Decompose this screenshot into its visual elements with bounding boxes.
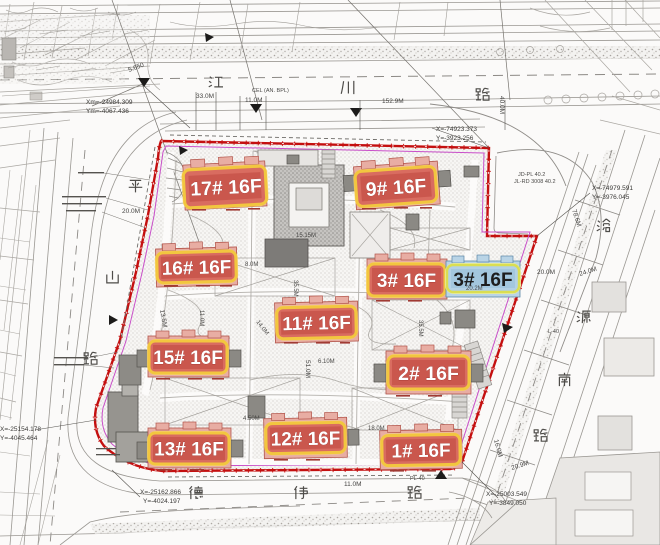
svg-text:12# 16F: 12# 16F bbox=[270, 428, 340, 450]
svg-text:Y=-3976.045: Y=-3976.045 bbox=[592, 194, 630, 201]
svg-text:Y=-4024.197: Y=-4024.197 bbox=[143, 498, 181, 505]
svg-text:20.2M: 20.2M bbox=[466, 286, 483, 292]
svg-text:Ym=-4067.436: Ym=-4067.436 bbox=[86, 108, 129, 115]
svg-text:13# 16F: 13# 16F bbox=[154, 440, 224, 461]
svg-text:4.50M: 4.50M bbox=[243, 416, 260, 422]
svg-text:35.5M: 35.5M bbox=[292, 280, 298, 297]
svg-text:33.0M: 33.0M bbox=[196, 93, 214, 100]
svg-text:17# 16F: 17# 16F bbox=[190, 175, 263, 201]
svg-text:40.0M: 40.0M bbox=[498, 96, 505, 114]
svg-text:20.0M: 20.0M bbox=[122, 208, 140, 215]
svg-text:X=-25162.866: X=-25162.866 bbox=[140, 489, 181, 496]
svg-text:Xm=-24984.309: Xm=-24984.309 bbox=[86, 99, 133, 106]
svg-text:152.9M: 152.9M bbox=[382, 98, 404, 105]
svg-text:3# 16F: 3# 16F bbox=[453, 270, 512, 291]
svg-text:51.0M: 51.0M bbox=[304, 360, 311, 378]
svg-text:X=-25154.178: X=-25154.178 bbox=[0, 426, 41, 433]
svg-text:15.15M: 15.15M bbox=[296, 233, 316, 239]
svg-text:11.0M: 11.0M bbox=[344, 481, 362, 488]
svg-text:PL-40: PL-40 bbox=[410, 476, 425, 482]
svg-text:11# 16F: 11# 16F bbox=[282, 313, 351, 336]
svg-text:1# 16F: 1# 16F bbox=[391, 440, 451, 462]
svg-text:X=-74923.373: X=-74923.373 bbox=[436, 126, 477, 133]
svg-text:X=-74979.591: X=-74979.591 bbox=[592, 185, 633, 192]
svg-text:16# 16F: 16# 16F bbox=[161, 257, 231, 280]
svg-text:JD-PL 40.2: JD-PL 40.2 bbox=[518, 172, 545, 178]
svg-text:18.0M: 18.0M bbox=[368, 426, 385, 432]
svg-text:6.10M: 6.10M bbox=[318, 359, 335, 365]
svg-text:Y=-4045.464: Y=-4045.464 bbox=[0, 435, 38, 442]
svg-text:9# 16F: 9# 16F bbox=[365, 175, 427, 201]
svg-text:JL-RD 3008 40.2: JL-RD 3008 40.2 bbox=[514, 179, 556, 185]
svg-text:L-40: L-40 bbox=[548, 329, 559, 335]
svg-text:8.0M: 8.0M bbox=[245, 262, 258, 268]
svg-text:35.5M: 35.5M bbox=[417, 320, 423, 337]
svg-text:3# 16F: 3# 16F bbox=[377, 271, 436, 292]
svg-text:CEL (AN. BPL): CEL (AN. BPL) bbox=[252, 88, 289, 94]
svg-text:11.0M: 11.0M bbox=[198, 310, 204, 326]
svg-text:11.0M: 11.0M bbox=[245, 97, 263, 104]
svg-text:15# 16F: 15# 16F bbox=[153, 348, 223, 369]
svg-text:2# 16F: 2# 16F bbox=[398, 363, 459, 385]
svg-text:Y=-3849.050: Y=-3849.050 bbox=[489, 500, 527, 507]
svg-text:20.0M: 20.0M bbox=[537, 269, 555, 276]
